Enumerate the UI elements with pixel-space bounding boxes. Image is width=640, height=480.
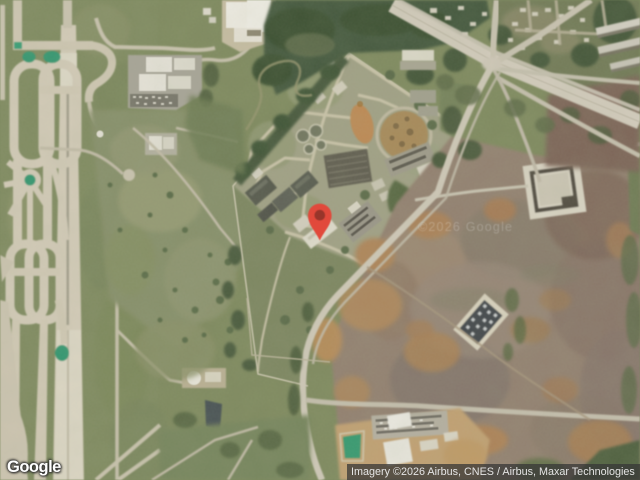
svg-text:©2026 Google: ©2026 Google <box>418 220 513 234</box>
